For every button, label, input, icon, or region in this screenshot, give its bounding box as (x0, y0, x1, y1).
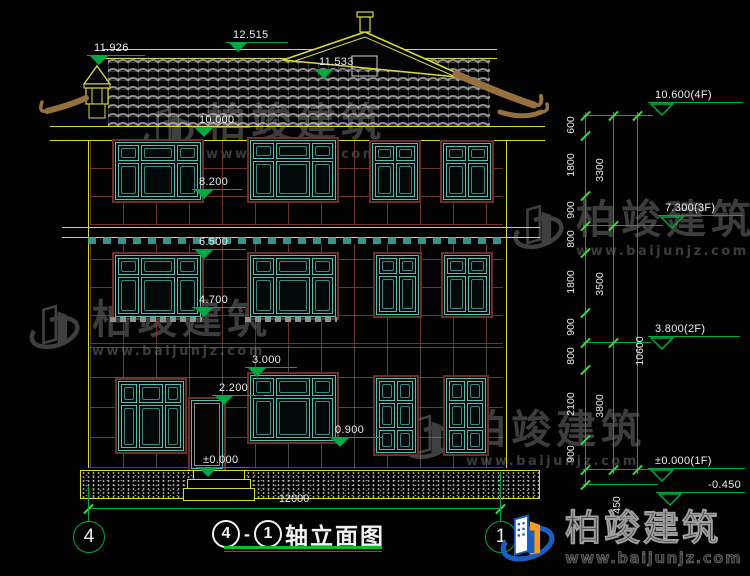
window-3f-2 (247, 137, 339, 203)
dim-tick (608, 464, 619, 475)
title-axis-start: 4 (212, 520, 240, 548)
window-3f-3 (369, 140, 421, 203)
elevation-mark-eave: 10.000 (192, 115, 250, 128)
dim-tick (580, 364, 591, 375)
dim-tick (580, 337, 591, 348)
elevation-mark-gable: 11.533 (312, 57, 368, 70)
dim-tick (580, 464, 591, 475)
title-axis-end: 1 (254, 520, 282, 548)
window-2f-1 (112, 252, 204, 320)
window-sill (110, 317, 202, 322)
level-mark-4f: 10.600(4F) (648, 90, 743, 103)
cornice-dentils (88, 237, 505, 244)
title-separator: - (244, 524, 250, 545)
window-1f-1 (115, 378, 187, 454)
dim-tick (580, 434, 591, 445)
dim-label: 3300 (594, 148, 608, 192)
roof-finial-tower (35, 58, 115, 120)
elevation-mark-f2-head: 6.500 (192, 237, 246, 250)
dim-tick (580, 190, 591, 201)
dim-label: 3800 (594, 384, 608, 428)
dim-label: 1800 (565, 260, 579, 304)
dim-label: 600 (565, 103, 579, 147)
watermark-logo-icon (26, 301, 82, 357)
eave-ornament-right (456, 74, 534, 105)
eave-ornament-left (47, 98, 86, 111)
dim-tick (580, 220, 591, 231)
level-mark-3f: 7.300(3F) (658, 203, 743, 216)
window-3f-4 (440, 140, 494, 203)
axis-bubble-4: 4 (73, 521, 105, 553)
width-dim-line (88, 508, 500, 509)
width-dim-text: 12000 (264, 493, 324, 505)
dim-tick (580, 110, 591, 121)
dim-label: 900 (565, 432, 579, 476)
window-1f-4 (443, 375, 489, 456)
dim-tick (632, 464, 643, 475)
dim-chain-line (585, 112, 586, 487)
dim-tick (632, 110, 643, 121)
title-underline (224, 546, 382, 549)
window-2f-2 (247, 252, 339, 320)
level-mark-base: -0.450 (656, 480, 745, 493)
elevation-mark-left-finial: 11.926 (87, 43, 145, 56)
level-line (583, 225, 663, 226)
dim-tick (580, 247, 591, 258)
dim-tick (580, 307, 591, 318)
dim-label: 2100 (565, 382, 579, 426)
entry-steps (183, 470, 253, 499)
elevation-mark-f1-sill: 0.900 (328, 425, 382, 438)
elevation-mark-f1-head: 3.000 (245, 355, 297, 368)
dim-label: 800 (565, 217, 579, 261)
elevation-mark-door-head: 2.200 (212, 383, 264, 396)
brand-site: www.baijunjz.com (565, 551, 742, 566)
dim-chain-line (637, 112, 638, 474)
window-2f-3 (373, 252, 422, 318)
brand-logo: 柏竣建筑 www.baijunjz.com (497, 510, 742, 566)
dim-tick (608, 110, 619, 121)
axis-line (88, 486, 89, 521)
dim-tick (608, 337, 619, 348)
title-underline-thin (224, 551, 382, 552)
level-mark-2f: 3.800(2F) (648, 324, 740, 337)
dim-tick (580, 479, 591, 490)
elevation-mark-ground: ±0.000 (196, 455, 250, 468)
elevation-mark-f2-sill: 4.700 (192, 295, 246, 308)
elevation-mark-ridge: 12.515 (226, 30, 288, 43)
elevation-mark-f3-sill: 8.200 (192, 177, 242, 190)
brand-name: 柏竣建筑 (565, 511, 742, 547)
dim-label: 800 (565, 334, 579, 378)
window-3f-1 (112, 139, 204, 203)
dim-label: 3500 (594, 262, 608, 306)
window-2f-4 (441, 252, 493, 318)
roof-gable (250, 8, 550, 120)
window-sill (245, 317, 337, 322)
watermark-site: www.baijunjz.com (576, 245, 750, 258)
dim-chain-line (613, 112, 614, 474)
dim-label: 10600 (634, 329, 648, 373)
dim-tick (608, 220, 619, 231)
brand-logo-icon (497, 510, 557, 566)
window-1f-3 (373, 375, 419, 456)
dim-tick (580, 130, 591, 141)
dim-label: 1800 (565, 143, 579, 187)
level-mark-1f: ±0.000(1F) (648, 456, 745, 469)
cad-elevation-drawing: 柏竣建筑 www.baijunjz.com 柏竣建筑 www.baijunjz.… (0, 0, 750, 576)
